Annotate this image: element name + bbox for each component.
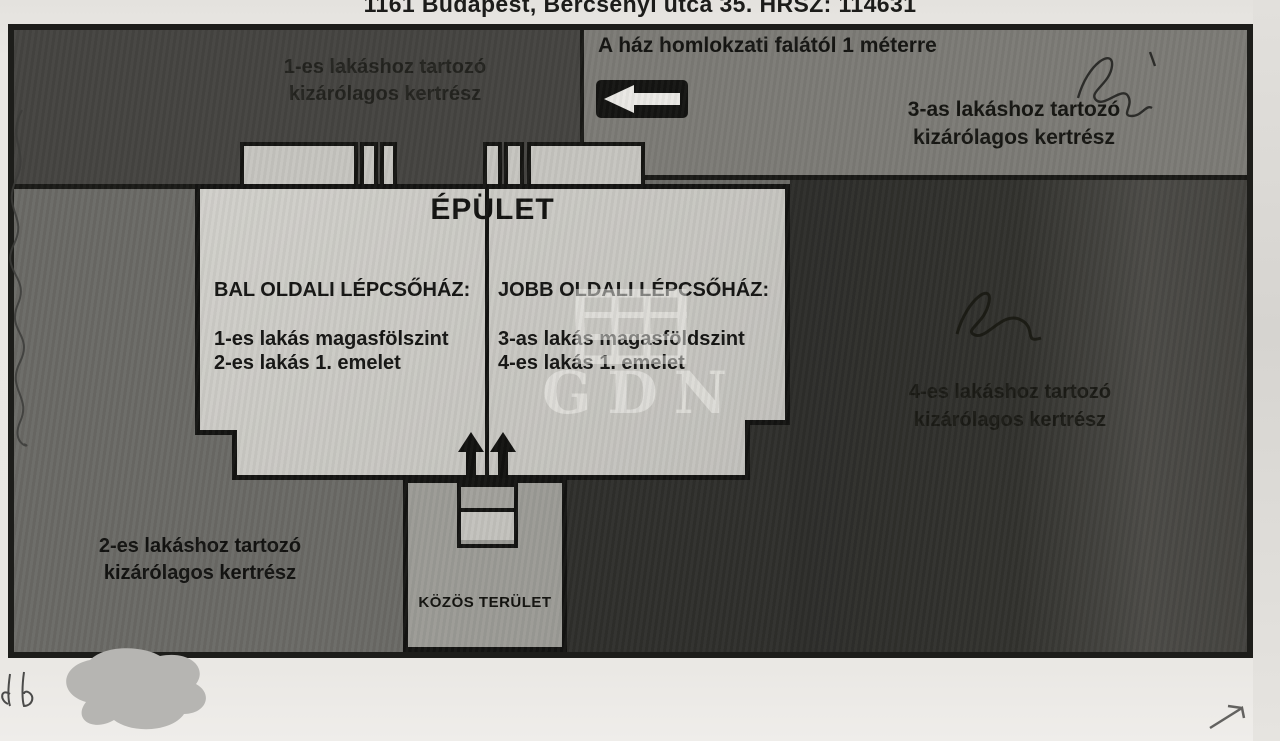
entrance-up-arrow-icon [490, 432, 516, 478]
redaction-blob [48, 640, 213, 740]
entrance-up-arrow-icon [458, 432, 484, 478]
garden-2-label: 2-es lakáshoz tartozó kizárólagos kertré… [60, 533, 340, 587]
terrace-left [240, 142, 358, 189]
left-arrow-sign [596, 80, 688, 118]
entrance-stair-box [457, 483, 518, 548]
left-stairwell-line-1: 1-es lakás magasfölszint [214, 327, 489, 351]
left-stairwell-block: BAL OLDALI LÉPCSŐHÁZ: 1-es lakás magasfö… [214, 279, 489, 375]
common-area: KÖZÖS TERÜLET [403, 478, 567, 652]
building-notch-right [745, 420, 790, 480]
page-edge-shadow [1253, 0, 1280, 741]
terrace-right [527, 142, 645, 189]
right-stairwell-title: JOBB OLDALI LÉPCSŐHÁZ: [498, 279, 773, 302]
stair-cell-upper [461, 487, 514, 512]
signature-mark [1062, 42, 1167, 132]
right-stairwell-line-2: 4-es lakás 1. emelet [498, 351, 773, 375]
signature-mark [0, 102, 58, 452]
stair-cell-lower [461, 512, 514, 540]
building-notch-left [195, 430, 237, 480]
garden-apartment-4: 4-es lakáshoz tartozó kizárólagos kertré… [790, 180, 1247, 652]
building: ÉPÜLET BAL OLDALI LÉPCSŐHÁZ: 1-es lakás … [195, 184, 790, 480]
left-arrow-icon [596, 80, 688, 118]
garden-apartment-4-lower [567, 480, 790, 652]
right-stairwell-line-1: 3-as lakás magasföldszint [498, 327, 773, 351]
garden-4-label: 4-es lakáshoz tartozó kizárólagos kertré… [830, 378, 1190, 434]
terrace-left-cell-1 [360, 142, 378, 189]
right-stairwell-block: JOBB OLDALI LÉPCSŐHÁZ: 3-as lakás magasf… [498, 279, 773, 375]
page-title: 1161 Budapest, Bercsényi utca 35. HRSZ: … [205, 0, 1075, 18]
scanned-site-plan-page: 1161 Budapest, Bercsényi utca 35. HRSZ: … [0, 0, 1280, 741]
left-stairwell-title: BAL OLDALI LÉPCSŐHÁZ: [214, 279, 489, 302]
terrace-left-cell-2 [380, 142, 397, 189]
common-area-label: KÖZÖS TERÜLET [408, 594, 562, 611]
pen-mark [1204, 696, 1259, 738]
left-stairwell-line-2: 2-es lakás 1. emelet [214, 351, 489, 375]
signature-mark [945, 272, 1055, 357]
terrace-right-cell-1 [483, 142, 502, 189]
building-title: ÉPÜLET [200, 193, 785, 227]
terrace-right-cell-2 [504, 142, 524, 189]
handwritten-note [0, 664, 41, 716]
garden-1-label: 1-es lakáshoz tartozó kizárólagos kertré… [185, 54, 585, 108]
